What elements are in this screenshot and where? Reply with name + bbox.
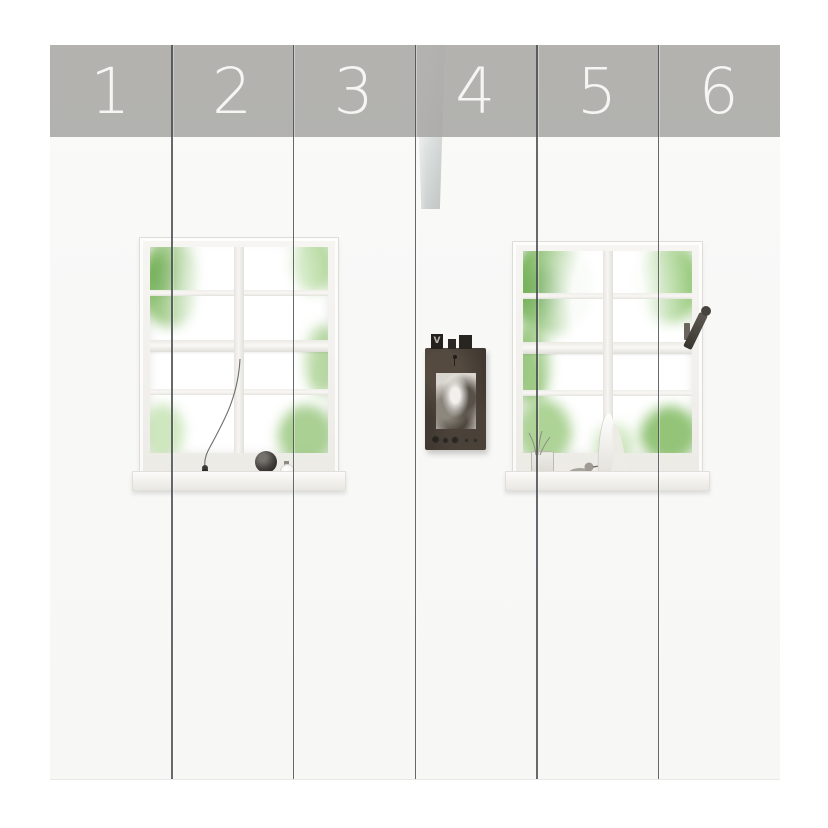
panel-6: 6: [658, 45, 780, 137]
left-window: [139, 237, 339, 487]
hanging-wire: [194, 355, 254, 477]
panel-4: 4: [415, 45, 537, 137]
frame-top-block-small: [448, 339, 456, 349]
panel-divider-1: [171, 45, 173, 779]
panel-1: 1: [50, 45, 172, 137]
mural-preview: V 1 2 3 4 5 6: [50, 45, 780, 780]
panel-divider-3: [415, 45, 417, 779]
panel-divider-4: [536, 45, 538, 779]
panel-2-label: 2: [212, 60, 253, 123]
right-window: [512, 241, 703, 487]
frame-hook: [453, 355, 457, 359]
latch-knob: [701, 306, 711, 316]
panel-divider-2: [293, 45, 295, 779]
frame-top-block-v: V: [431, 334, 443, 349]
picture-frame: V: [425, 348, 486, 450]
panel-divider-5: [658, 45, 660, 779]
window-latch: [684, 305, 716, 359]
window-sill: [132, 471, 346, 491]
globe-sphere: [255, 451, 277, 473]
black-white-photo: [436, 373, 476, 429]
panel-3-label: 3: [334, 60, 375, 123]
frame-trinkets: [429, 435, 482, 445]
trinket-medallion: [442, 437, 449, 444]
trinket-medallion: [431, 435, 440, 444]
frame-tab-letter: V: [434, 337, 441, 346]
panel-5: 5: [537, 45, 659, 137]
panel-1-label: 1: [90, 60, 131, 123]
panel-3: 3: [293, 45, 415, 137]
trinket-medallion: [464, 438, 469, 443]
trinket-medallion: [473, 438, 478, 443]
panel-6-label: 6: [699, 60, 740, 123]
panel-5-label: 5: [577, 60, 618, 123]
panel-4-label: 4: [455, 60, 496, 123]
panel-2: 2: [172, 45, 294, 137]
dried-stems: [526, 429, 552, 455]
preview-canvas: V 1 2 3 4 5 6: [0, 0, 828, 828]
frame-top-block-large: [459, 335, 472, 349]
trinket-medallion: [451, 436, 459, 444]
